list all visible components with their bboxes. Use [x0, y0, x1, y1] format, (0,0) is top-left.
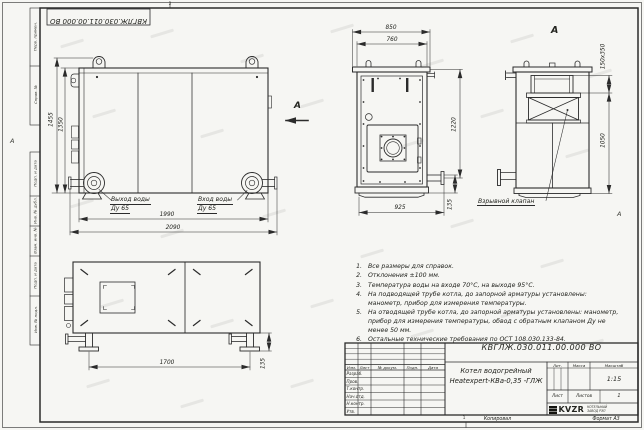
title-block-product-name: Котел водогрейный Heatexpert-КВа-0,35 -Г… — [446, 363, 546, 390]
fold-mark-bottom: 1 — [461, 416, 467, 421]
callout-water-outlet-dn: Ду 65 — [110, 205, 130, 214]
margin-label-vzam-inv: Взам. инв. № — [33, 225, 38, 255]
dim-label-150x350: 150х350 — [601, 36, 608, 76]
note-item: 5.На отводящей трубе котла, до запорной … — [350, 309, 622, 335]
sheets-value: 1 — [600, 393, 638, 399]
col-dokum: № докум. — [371, 365, 404, 370]
dim-label-2090: 2090 — [158, 225, 188, 232]
note-number: 1. — [350, 263, 362, 272]
side-view-linework — [52, 57, 308, 236]
note-number: 3. — [350, 282, 362, 291]
dim-label-850: 850 — [376, 25, 406, 32]
product-name-line1: Котел водогрейный — [460, 367, 531, 376]
note-number: 4. — [350, 291, 362, 309]
top-stamp-doc-number: КВГЛЖ.030.011.00.000 ВО — [47, 9, 150, 25]
callout-water-inlet: Вход воды — [197, 196, 233, 205]
view-arrow-letter: А — [294, 101, 301, 111]
note-text: Все размеры для справок. — [368, 263, 622, 272]
company-name: КОТЕЛЬНЫЙ ЗАВОД РЭП — [587, 406, 607, 414]
dim-label-1990: 1990 — [152, 212, 182, 219]
notes-list: 1.Все размеры для справок.2.Отклонения ±… — [350, 263, 622, 345]
note-text: Отклонения ±100 мм. — [368, 272, 622, 281]
footer-format: Формат А3 — [580, 417, 632, 422]
opposite-view-linework — [65, 262, 272, 370]
note-item: 3.Температура воды на входе 70°С, на вых… — [350, 282, 622, 291]
row-nachotd: Нач.отд. — [347, 394, 365, 399]
note-number: 5. — [350, 309, 362, 335]
row-tkontr: Т.контр. — [347, 386, 365, 391]
margin-label-podp-data-1: Подп. и дата — [33, 151, 38, 195]
company-logo-text: KVZR — [559, 405, 585, 414]
scale-value: 1:15 — [590, 375, 638, 383]
lit-label: Лит. — [547, 363, 568, 368]
mass-label: Масса — [568, 363, 590, 368]
footer-copy: Копировал — [470, 417, 525, 422]
note-number: 6. — [350, 336, 362, 345]
margin-label-sprav-n: Справ. № — [33, 65, 38, 124]
scale-label: Масштаб — [590, 363, 638, 368]
dim-label-1350: 1350 — [59, 109, 66, 139]
col-data: Дата — [421, 365, 445, 370]
dim-label-1220: 1220 — [451, 109, 458, 139]
note-text: На отводящей трубе котла, до запорной ар… — [368, 309, 622, 335]
note-item: 2.Отклонения ±100 мм. — [350, 272, 622, 281]
view-a-linework — [498, 61, 613, 201]
margin-label-inv-dubl: Инв. № дубл. — [33, 195, 38, 225]
sheets-label: Листов — [568, 394, 600, 399]
view-a-title: А — [551, 25, 558, 36]
row-nkontr: Н.контр. — [347, 401, 365, 406]
col-izm: Изм. — [345, 365, 358, 370]
front-view-linework — [353, 30, 463, 216]
row-prov: Пров. — [347, 379, 359, 384]
callout-water-outlet: Выход воды — [110, 196, 151, 205]
company-logo-icon — [549, 406, 557, 414]
row-utv: Утв. — [347, 409, 356, 414]
drawing-sheet: КВГЛЖ.030.011.00.000 ВО 2 1 А А Перв. пр… — [0, 0, 644, 430]
col-podp: Подп. — [404, 365, 421, 370]
note-item: 4.На подводящей трубе котла, до запорной… — [350, 291, 622, 309]
company-logo-row: KVZR КОТЕЛЬНЫЙ ЗАВОД РЭП — [549, 404, 637, 415]
dim-label-1455: 1455 — [49, 104, 56, 134]
note-text: На подводящей трубе котла, до запорной а… — [368, 291, 622, 309]
company-name-line2: ЗАВОД РЭП — [587, 410, 607, 414]
zone-letter-right: А — [617, 210, 621, 218]
col-list: Лист — [358, 365, 371, 370]
dim-label-1700: 1700 — [152, 360, 182, 367]
note-text: Температура воды на входе 70°С, на выход… — [368, 282, 622, 291]
margin-label-podp-data-2: Подп. и дата — [33, 255, 38, 295]
note-item: 1.Все размеры для справок. — [350, 263, 622, 272]
dim-label-925: 925 — [385, 205, 415, 212]
note-number: 2. — [350, 272, 362, 281]
dim-label-1050: 1050 — [601, 125, 608, 155]
zone-letter-left: А — [10, 137, 14, 145]
dim-label-135-opposite: 135 — [260, 348, 267, 378]
margin-label-inv-podl: Инв. № подл. — [33, 295, 38, 344]
fold-mark-top: 2 — [167, 2, 173, 7]
sheet-label: Лист — [547, 394, 568, 399]
row-razrab: Разраб. — [347, 371, 363, 376]
dim-label-135-front: 135 — [448, 189, 455, 219]
callout-explosion-valve: Взрывной клапан — [477, 198, 535, 207]
margin-label-perv-primen: Перв. примен. — [33, 7, 38, 65]
dim-label-760: 760 — [377, 37, 407, 44]
title-block-doc-number: КВГЛЖ.030.011.00.000 ВО — [445, 343, 638, 362]
callout-water-inlet-dn: Ду 65 — [197, 205, 217, 214]
product-name-line2: Heatexpert-КВа-0,35 -ГЛЖ — [450, 377, 543, 386]
